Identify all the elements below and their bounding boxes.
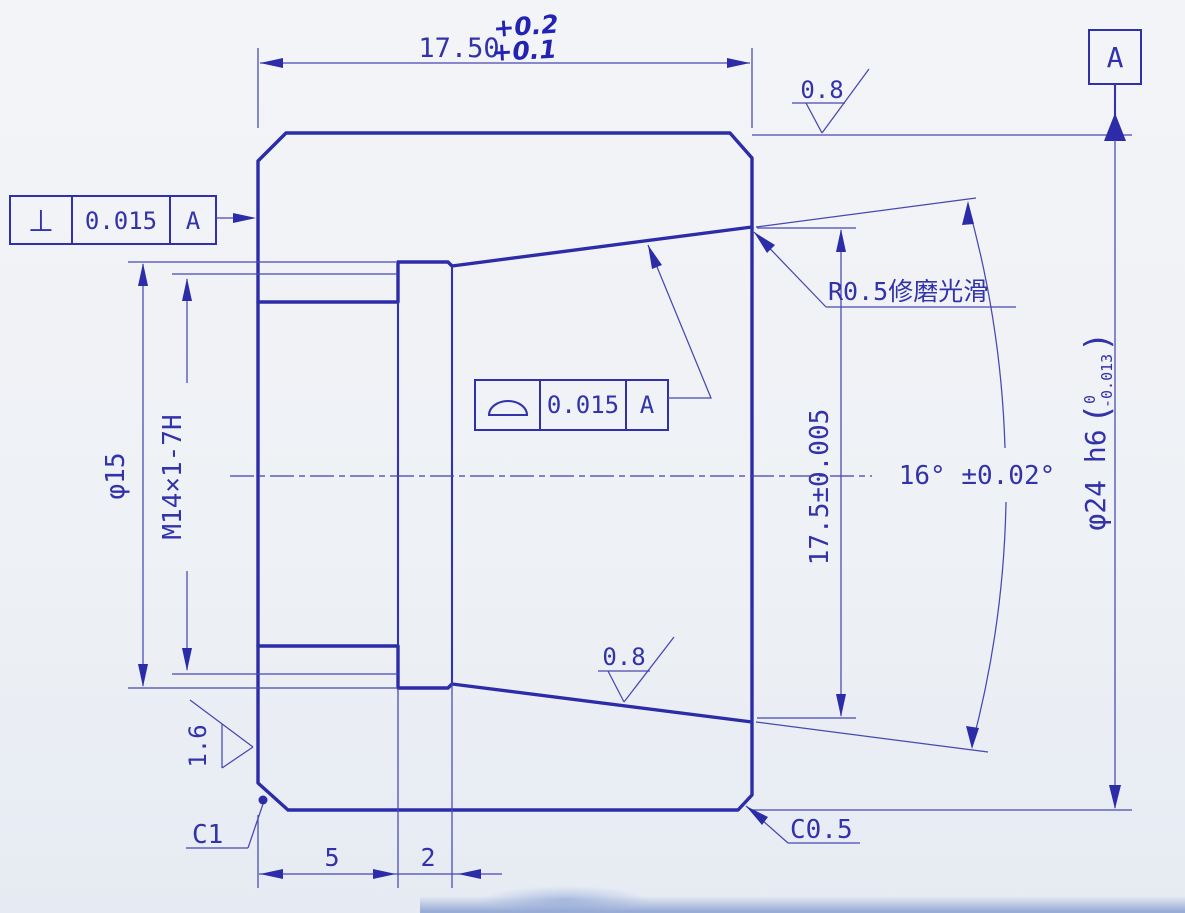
part-body bbox=[172, 133, 872, 810]
roughness-top-face: 0.8 bbox=[792, 69, 869, 133]
dim-total-length-text: 17.50 bbox=[418, 33, 499, 64]
thread-spec-text: M14×1-7H bbox=[158, 414, 188, 539]
datum-triangle-icon bbox=[1104, 113, 1126, 141]
cone-angle-text: 16° ±0.02° bbox=[899, 461, 1056, 491]
datum-label: A bbox=[1107, 41, 1124, 74]
arrowhead-left bbox=[260, 869, 283, 879]
arrowhead-bottom bbox=[182, 648, 192, 671]
leader-line bbox=[248, 801, 264, 848]
perpendicularity-datum: A bbox=[186, 207, 201, 235]
profile-datum: A bbox=[640, 391, 655, 419]
roughness-value: 0.8 bbox=[602, 643, 645, 671]
roughness-left-face: 1.6 bbox=[184, 700, 253, 768]
arrowhead-mid bbox=[373, 869, 396, 879]
arrowhead-bottom bbox=[836, 694, 846, 717]
arrowhead-top bbox=[836, 229, 846, 252]
thread-length-text: 5 bbox=[324, 843, 339, 872]
perpendicularity-tolerance: 0.015 bbox=[85, 207, 157, 235]
roughness-value: 0.8 bbox=[800, 76, 843, 104]
leader-arrowhead bbox=[233, 213, 256, 223]
upper-section-half bbox=[258, 133, 752, 302]
roughness-left-leg bbox=[806, 103, 822, 133]
part-section-drawing: 17.50 +0.2 +0.1 ⊥ 0.015 A 0.015 A A φ bbox=[0, 0, 1185, 913]
note-chamfer-right: C0.5 bbox=[746, 806, 860, 845]
drawing-sheet: 17.50 +0.2 +0.1 ⊥ 0.015 A 0.015 A A φ bbox=[0, 0, 1185, 913]
angle-arc-lower bbox=[972, 502, 1006, 745]
outer-dia-label-group: φ24 h6 ( 0 -0.013 ) bbox=[1078, 332, 1118, 531]
arrowhead-top bbox=[182, 278, 192, 301]
arrowhead-top bbox=[962, 201, 974, 225]
chamfer-left-text: C1 bbox=[192, 820, 223, 850]
dim-thread-spec: M14×1-7H bbox=[158, 278, 192, 671]
arrowhead-bottom bbox=[1109, 785, 1121, 809]
arrowhead-top bbox=[138, 263, 148, 286]
outer-dia-tol-upper: 0 bbox=[1081, 395, 1099, 404]
profile-tolerance: 0.015 bbox=[547, 391, 619, 419]
leader-line bbox=[648, 245, 711, 398]
roughness-left-leg bbox=[608, 671, 624, 702]
lower-section-half bbox=[258, 646, 752, 810]
tol-lower-handwritten: +0.1 bbox=[491, 35, 558, 67]
mouth-dia-text: 17.5±0.005 bbox=[805, 409, 835, 566]
arrowhead-right bbox=[458, 869, 481, 879]
note-chamfer-left: C1 bbox=[186, 796, 268, 851]
outer-dia-text: φ24 h6 bbox=[1079, 429, 1112, 530]
profile-of-surface-icon bbox=[489, 401, 527, 415]
fillet-note-text: R0.5修磨光滑 bbox=[828, 277, 988, 306]
perpendicularity-icon: ⊥ bbox=[28, 204, 54, 239]
roughness-cone-face: 0.8 bbox=[598, 637, 674, 702]
angle-arc-upper bbox=[968, 205, 1005, 448]
roughness-left-leg bbox=[222, 747, 253, 768]
leader-arrowhead bbox=[648, 245, 662, 269]
outer-dia-paren-close: ) bbox=[1078, 332, 1118, 352]
dim-groove-dia: φ15 bbox=[101, 262, 396, 688]
groove-dia-text: φ15 bbox=[101, 453, 131, 500]
groove-width-text: 2 bbox=[420, 843, 435, 872]
ext-line-lower-taper bbox=[756, 722, 988, 752]
arrowhead-bottom bbox=[966, 726, 979, 749]
dim-bottom-lengths: 5 2 bbox=[258, 684, 502, 888]
arrowhead-bottom bbox=[138, 664, 148, 687]
ext-line-upper-taper bbox=[756, 198, 976, 227]
arrowhead-right bbox=[727, 58, 750, 68]
dim-total-length: 17.50 +0.2 +0.1 bbox=[258, 10, 752, 128]
arrowhead-left bbox=[260, 58, 283, 68]
fcf-perpendicularity: ⊥ 0.015 A bbox=[10, 196, 256, 244]
fcf-profile: 0.015 A bbox=[475, 245, 711, 430]
roughness-value: 1.6 bbox=[184, 724, 212, 767]
leader-dot bbox=[259, 796, 268, 805]
outer-dia-tol-lower: -0.013 bbox=[1098, 354, 1116, 408]
note-fillet: R0.5修磨光滑 bbox=[754, 232, 1016, 307]
scan-artifact-smudge bbox=[480, 886, 650, 913]
chamfer-right-text: C0.5 bbox=[790, 815, 853, 845]
